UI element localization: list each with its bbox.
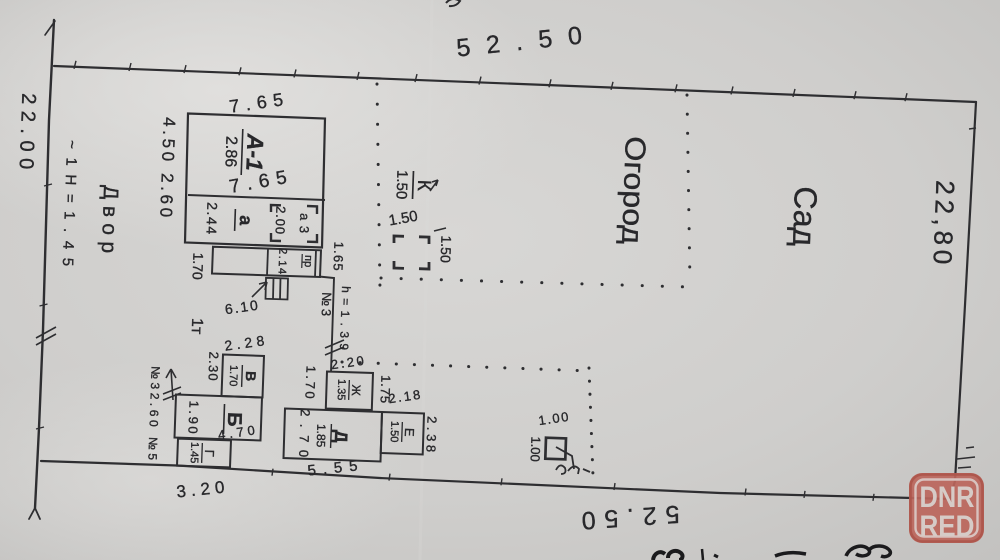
svg-text:Ж: Ж — [349, 384, 363, 396]
svg-text:Огород: Огород — [615, 136, 651, 245]
svg-text:1.85: 1.85 — [314, 424, 329, 448]
svg-text:1.50: 1.50 — [393, 170, 411, 200]
svg-text:2.86: 2.86 — [221, 136, 239, 168]
svg-text:2.14: 2.14 — [276, 248, 289, 274]
svg-text:1.65: 1.65 — [330, 241, 346, 271]
svg-text:1.70: 1.70 — [227, 365, 240, 387]
svg-text:пр: пр — [302, 255, 314, 267]
svg-text:1.50: 1.50 — [388, 421, 401, 443]
svg-text:1т: 1т — [188, 318, 206, 335]
svg-text:№3: №3 — [319, 292, 335, 317]
svg-text:4.50 2.60: 4.50 2.60 — [156, 117, 178, 218]
svg-text:Г: Г — [202, 449, 217, 457]
svg-text:RED: RED — [920, 510, 975, 543]
svg-text:1.70: 1.70 — [302, 365, 318, 399]
svg-text:2.00: 2.00 — [273, 206, 289, 235]
svg-text:2.44: 2.44 — [203, 202, 220, 235]
svg-text:1.00: 1.00 — [528, 436, 544, 462]
svg-text:Е: Е — [402, 428, 417, 438]
svg-text:2.30: 2.30 — [205, 351, 221, 381]
svg-text:1.70: 1.70 — [190, 252, 207, 280]
svg-text:а: а — [236, 215, 256, 227]
svg-text:1.35: 1.35 — [335, 379, 348, 401]
svg-text:Д: Д — [331, 430, 351, 444]
svg-text:22,80: 22,80 — [928, 180, 961, 265]
svg-text:1.45: 1.45 — [188, 442, 201, 464]
svg-text:1.90: 1.90 — [185, 400, 201, 434]
svg-text:В: В — [243, 371, 259, 382]
svg-text:2.38: 2.38 — [423, 416, 439, 453]
svg-text:1.50: 1.50 — [438, 235, 455, 263]
svg-text:Сад: Сад — [786, 186, 824, 248]
svg-text:А-1: А-1 — [241, 132, 268, 171]
